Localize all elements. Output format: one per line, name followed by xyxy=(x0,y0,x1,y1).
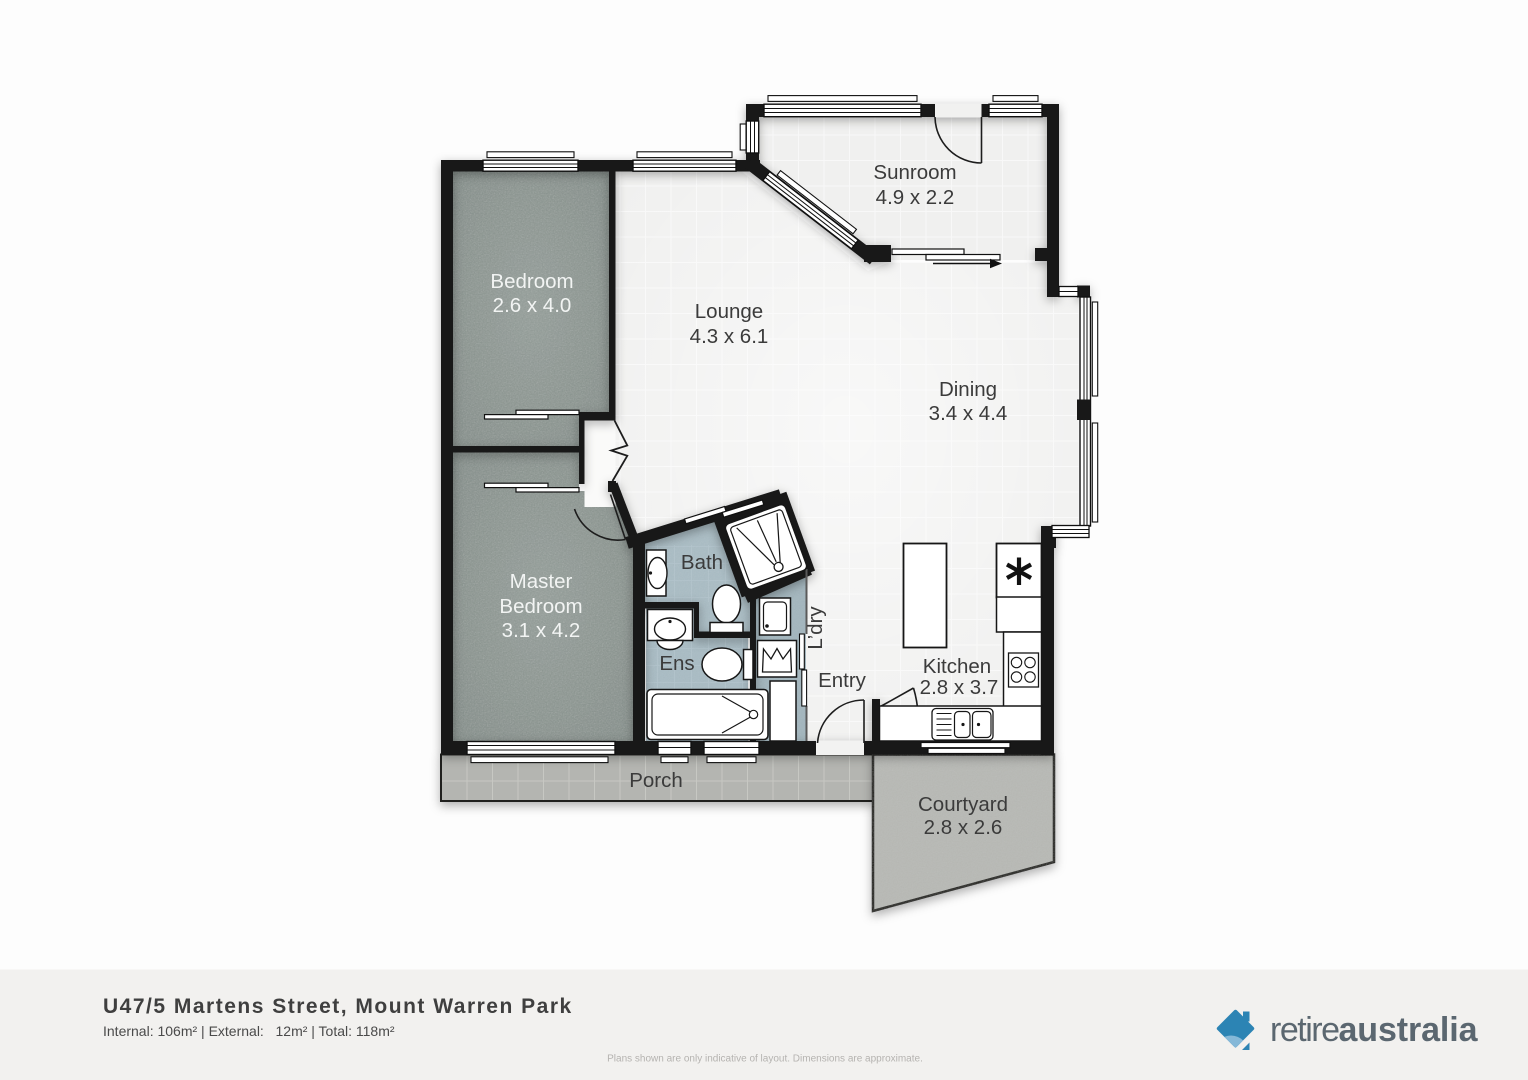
svg-text:Bedroom: Bedroom xyxy=(490,270,573,293)
svg-text:Bath: Bath xyxy=(681,551,723,574)
svg-text:Ens: Ens xyxy=(659,652,694,675)
svg-text:3.1 x 4.2: 3.1 x 4.2 xyxy=(502,619,581,642)
svg-text:Plans shown are only indicativ: Plans shown are only indicative of layou… xyxy=(607,1054,923,1065)
svg-text:4.9 x 2.2: 4.9 x 2.2 xyxy=(876,186,955,209)
svg-text:U47/5 Martens Street, Mount Wa: U47/5 Martens Street, Mount Warren Park xyxy=(103,995,573,1018)
svg-text:Master: Master xyxy=(510,570,573,593)
svg-text:4.3 x 6.1: 4.3 x 6.1 xyxy=(690,325,769,348)
svg-text:Porch: Porch xyxy=(629,769,683,792)
svg-text:L’dry: L’dry xyxy=(804,606,827,650)
svg-text:Dining: Dining xyxy=(939,378,997,401)
svg-text:Entry: Entry xyxy=(818,669,867,692)
svg-text:2.8 x 2.6: 2.8 x 2.6 xyxy=(924,816,1003,839)
svg-text:3.4 x 4.4: 3.4 x 4.4 xyxy=(929,402,1008,425)
svg-text:retireaustralia: retireaustralia xyxy=(1270,1011,1479,1049)
svg-text:2.8 x 3.7: 2.8 x 3.7 xyxy=(920,676,999,699)
svg-text:Courtyard: Courtyard xyxy=(918,793,1008,816)
svg-text:Lounge: Lounge xyxy=(695,300,763,323)
svg-text:Bedroom: Bedroom xyxy=(499,595,582,618)
svg-text:2.6 x 4.0: 2.6 x 4.0 xyxy=(493,294,572,317)
svg-text:Internal: 106m² | External:: Internal: 106m² | External: 12m² | Total… xyxy=(103,1023,395,1039)
svg-text:Kitchen: Kitchen xyxy=(923,655,991,678)
svg-text:Sunroom: Sunroom xyxy=(873,161,956,184)
